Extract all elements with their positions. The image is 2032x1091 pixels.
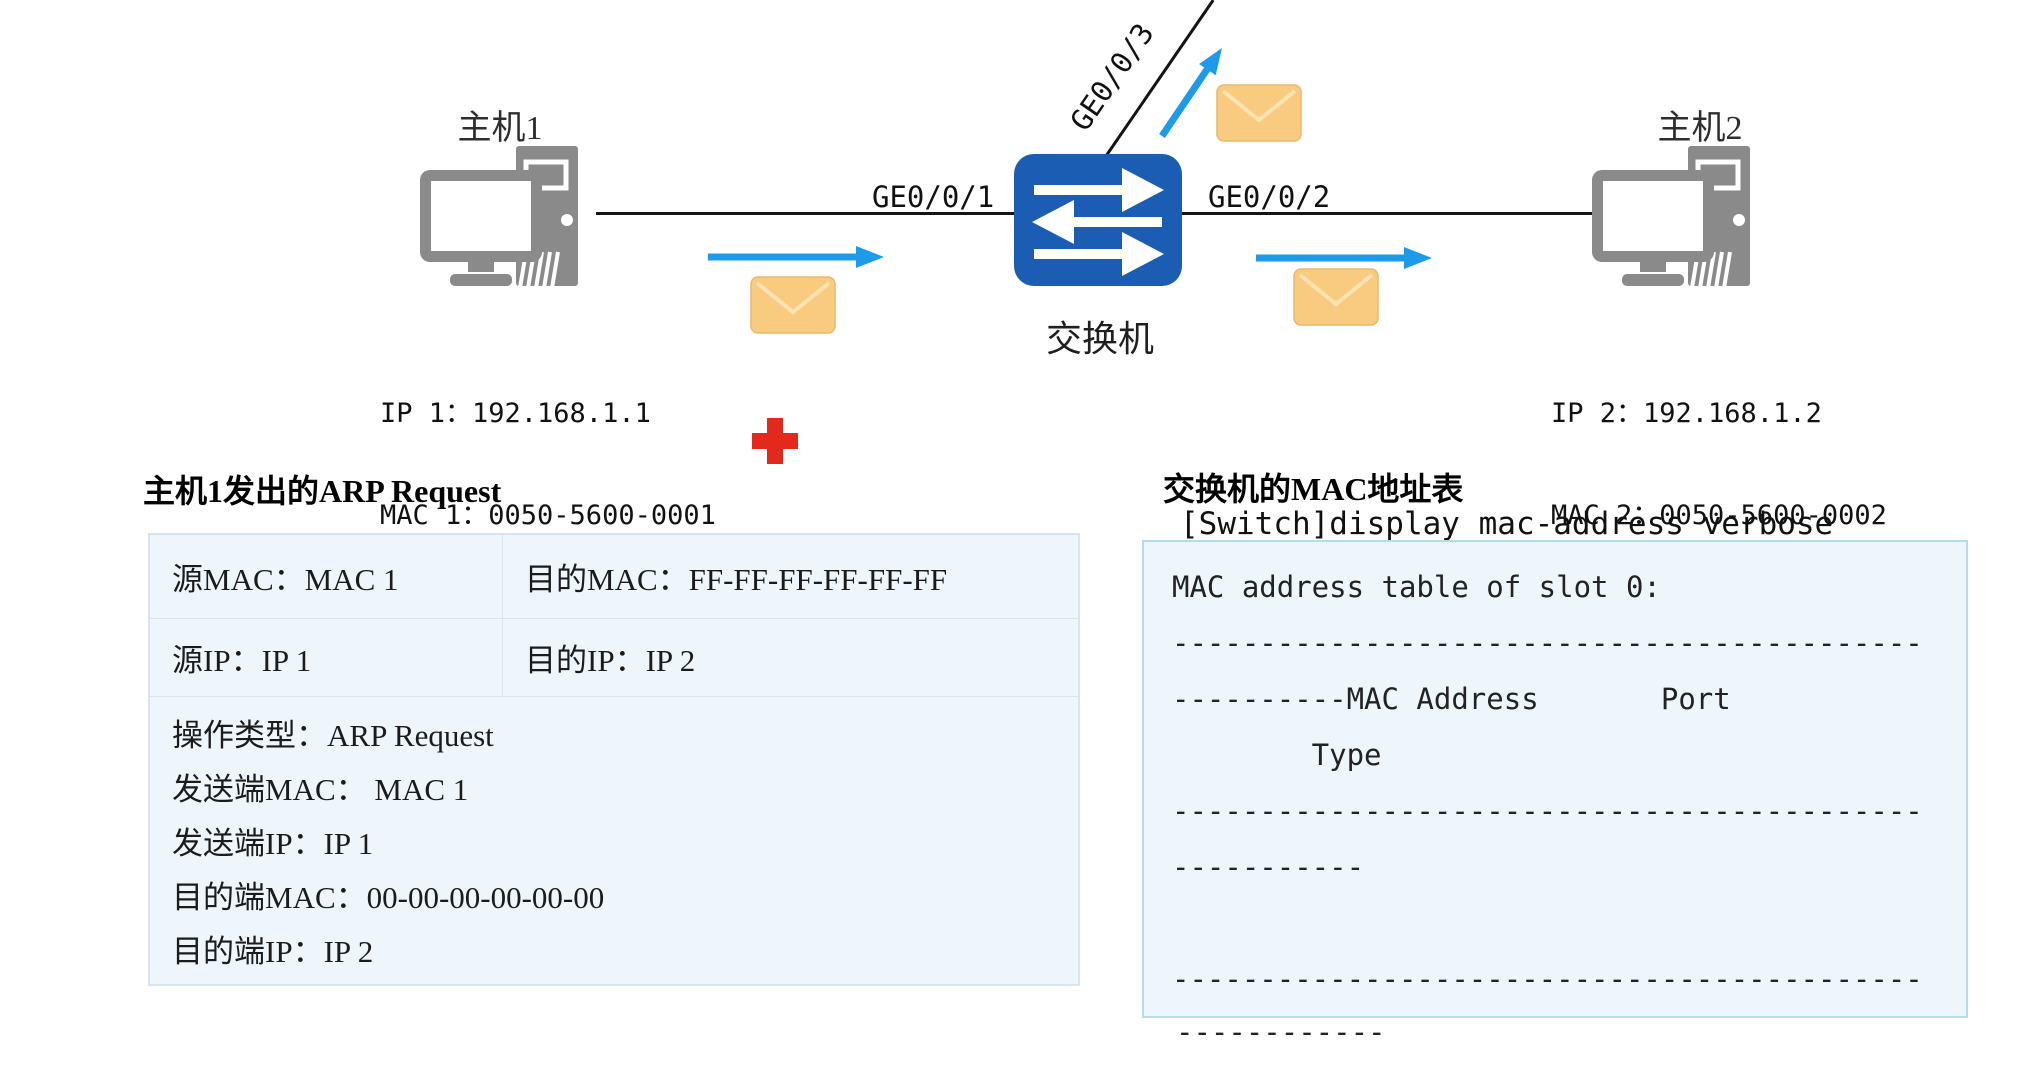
arp-detail-line: 发送端IP：IP 1 [172, 817, 1078, 871]
terminal-line: MAC address table of slot 0: [1172, 559, 1938, 615]
arp-detail-line: 目的端MAC：00-00-00-00-00-00 [172, 871, 1078, 925]
terminal-line: ----------MAC Address Port [1172, 671, 1938, 727]
host2-label: 主机2 [1625, 100, 1775, 149]
terminal-overflow-dashes: ------------ [1176, 1015, 1386, 1049]
packet-envelope-top-icon [1216, 84, 1302, 147]
red-cross-icon [752, 418, 798, 469]
host1-label: 主机1 [425, 100, 575, 149]
terminal-line: ----------- [1172, 839, 1938, 895]
arp-request-table: 源MAC：MAC 1 目的MAC：FF-FF-FF-FF-FF-FF 源IP：I… [148, 533, 1080, 986]
arp-cell-dst-ip: 目的IP：IP 2 [503, 619, 1078, 697]
host2-ip: IP 2：192.168.1.2 [1551, 397, 1887, 431]
host1-ip: IP 1：192.168.1.1 [380, 397, 716, 431]
arp-cell-src-mac: 源MAC：MAC 1 [150, 535, 503, 619]
host1-computer-icon [420, 146, 600, 303]
switch-icon [1014, 154, 1182, 291]
flow-arrow-host1-to-switch-icon [706, 244, 886, 275]
mac-panel-title: 交换机的MAC地址表 [1163, 464, 1463, 510]
terminal-line: ----------------------------------------… [1172, 951, 1938, 1007]
terminal-line: ----------------------------------------… [1172, 615, 1938, 671]
mac-address-table-box: MAC address table of slot 0: -----------… [1142, 540, 1968, 1018]
arp-panel-title: 主机1发出的ARP Request [143, 466, 501, 512]
arp-detail-line: 发送端MAC： MAC 1 [172, 763, 1078, 817]
packet-envelope-left-icon [750, 276, 836, 339]
port-label-ge2: GE0/0/2 [1208, 180, 1330, 214]
terminal-line: Type [1172, 727, 1938, 783]
arp-cell-src-ip: 源IP：IP 1 [150, 619, 503, 697]
packet-envelope-right-icon [1292, 268, 1380, 331]
switch-label: 交换机 [1035, 310, 1165, 362]
arp-detail-cell: 操作类型：ARP Request 发送端MAC： MAC 1 发送端IP：IP … [150, 697, 1078, 984]
port-label-ge1: GE0/0/1 [872, 180, 994, 214]
arp-detail-line: 操作类型：ARP Request [172, 709, 1078, 763]
network-diagram-page: 主机1 IP 1：192.168.1.1 MAC 1：0050-5600-000… [0, 0, 2032, 1091]
switch-cli-command: [Switch]display mac-address verbose [1180, 506, 1833, 542]
terminal-line [1172, 895, 1938, 951]
host2-computer-icon [1592, 146, 1772, 303]
arp-detail-line: 目的端IP：IP 2 [172, 925, 1078, 979]
terminal-line: ----------------------------------------… [1172, 783, 1938, 839]
arp-cell-dst-mac: 目的MAC：FF-FF-FF-FF-FF-FF [503, 535, 1078, 619]
